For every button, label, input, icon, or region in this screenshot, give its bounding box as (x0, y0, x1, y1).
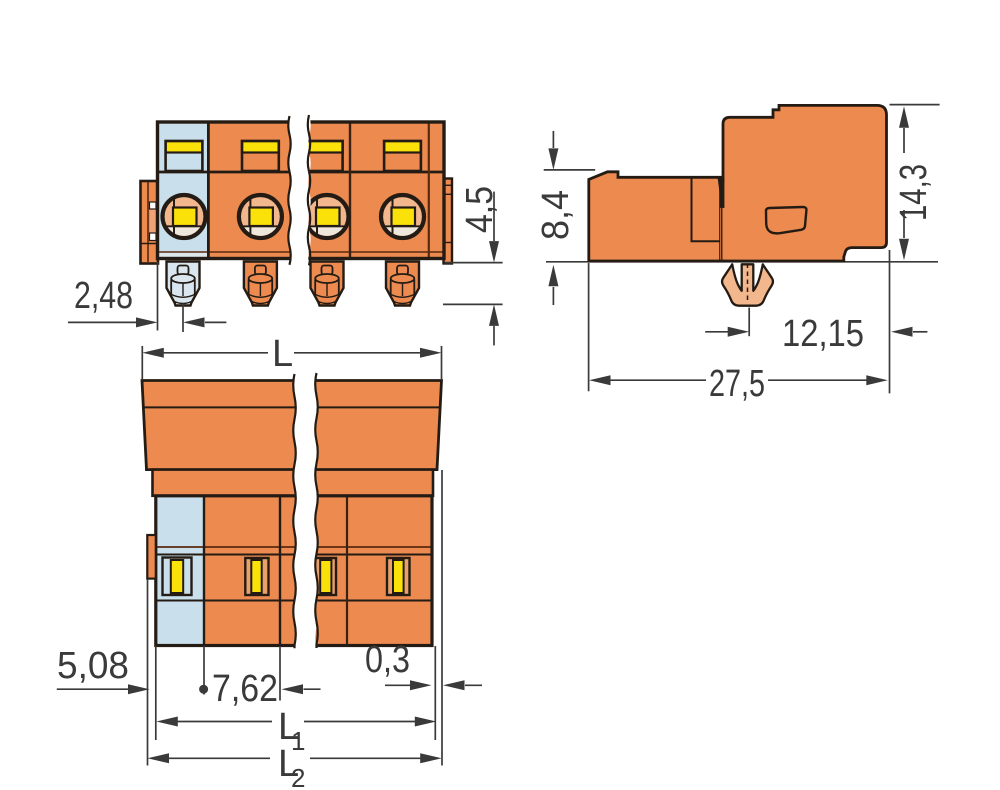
svg-text:L: L (272, 333, 293, 375)
svg-text:12,15: 12,15 (782, 313, 864, 355)
svg-text:8,4: 8,4 (535, 190, 577, 240)
svg-text:2: 2 (291, 763, 305, 790)
svg-text:0,3: 0,3 (365, 639, 410, 681)
svg-text:7,62: 7,62 (212, 668, 278, 710)
svg-text:27,5: 27,5 (709, 363, 765, 405)
svg-text:5,08: 5,08 (57, 645, 129, 687)
svg-text:14,3: 14,3 (893, 164, 935, 221)
svg-text:2,48: 2,48 (74, 275, 133, 317)
